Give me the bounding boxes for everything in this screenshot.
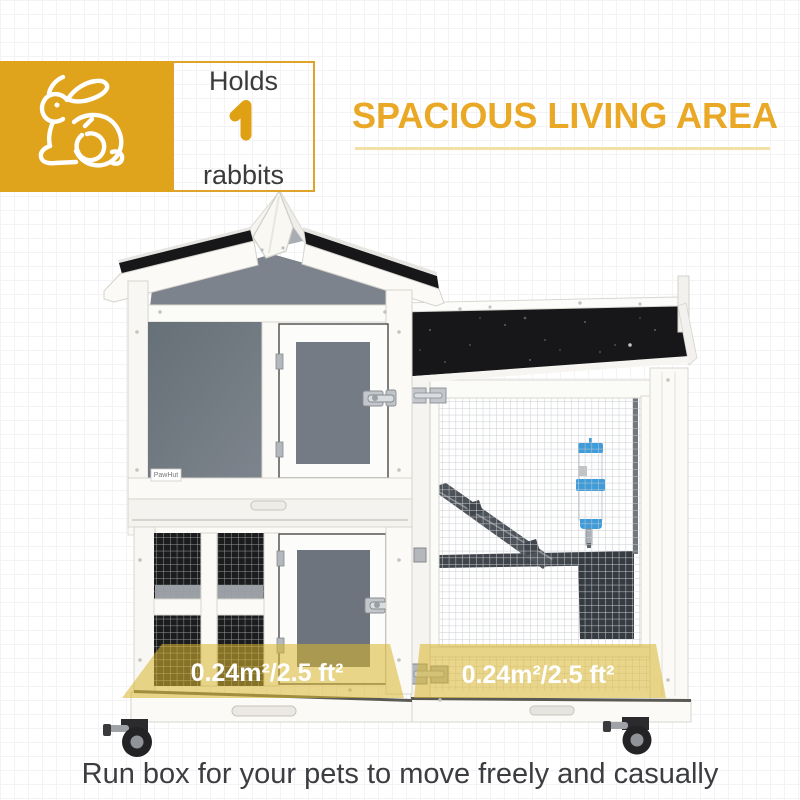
svg-text:0.24m²/2.5 ft²: 0.24m²/2.5 ft² bbox=[191, 659, 344, 687]
svg-text:PawHut: PawHut bbox=[154, 472, 179, 479]
svg-text:0.24m²/2.5 ft²: 0.24m²/2.5 ft² bbox=[462, 661, 615, 689]
